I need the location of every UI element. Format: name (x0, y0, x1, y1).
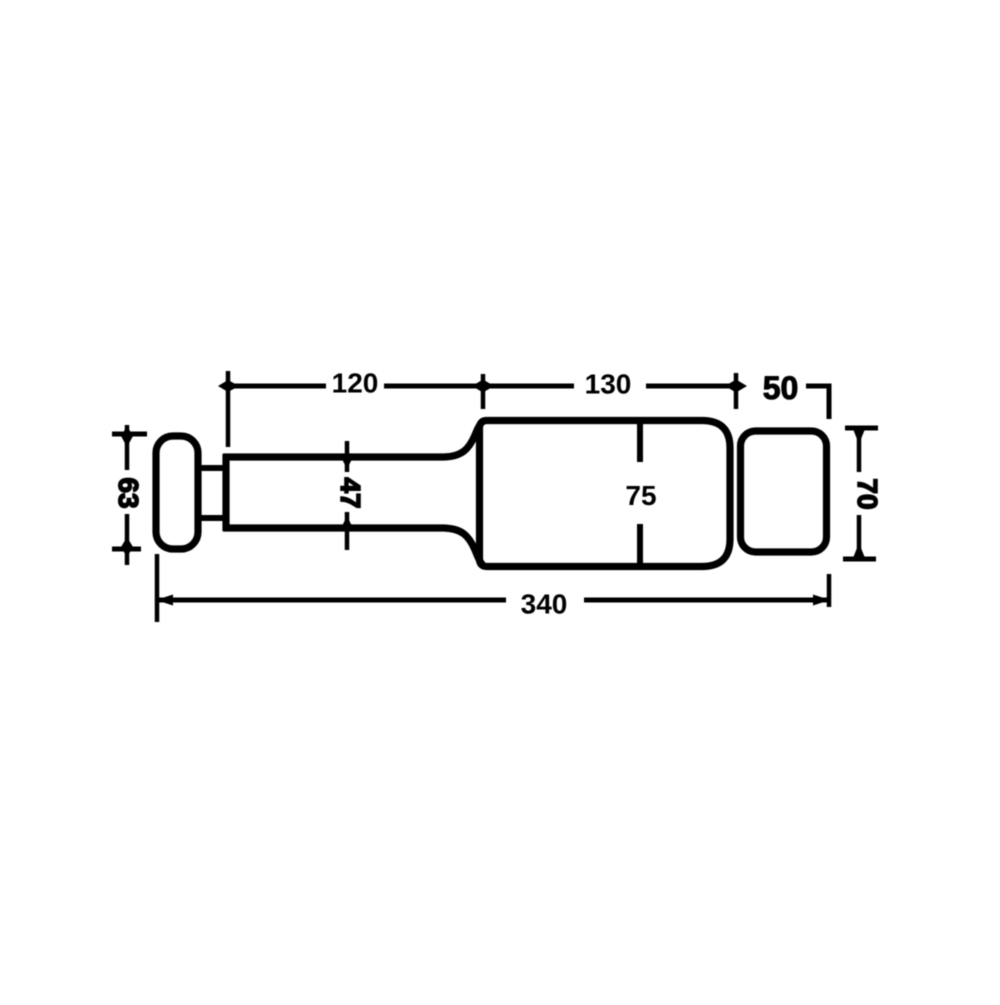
svg-text:50: 50 (763, 370, 799, 406)
svg-text:70: 70 (852, 478, 883, 509)
svg-text:47: 47 (335, 477, 366, 508)
svg-text:63: 63 (113, 477, 144, 508)
svg-text:340: 340 (521, 589, 568, 620)
svg-text:130: 130 (585, 369, 632, 400)
svg-text:120: 120 (332, 368, 379, 399)
svg-text:75: 75 (625, 480, 656, 511)
